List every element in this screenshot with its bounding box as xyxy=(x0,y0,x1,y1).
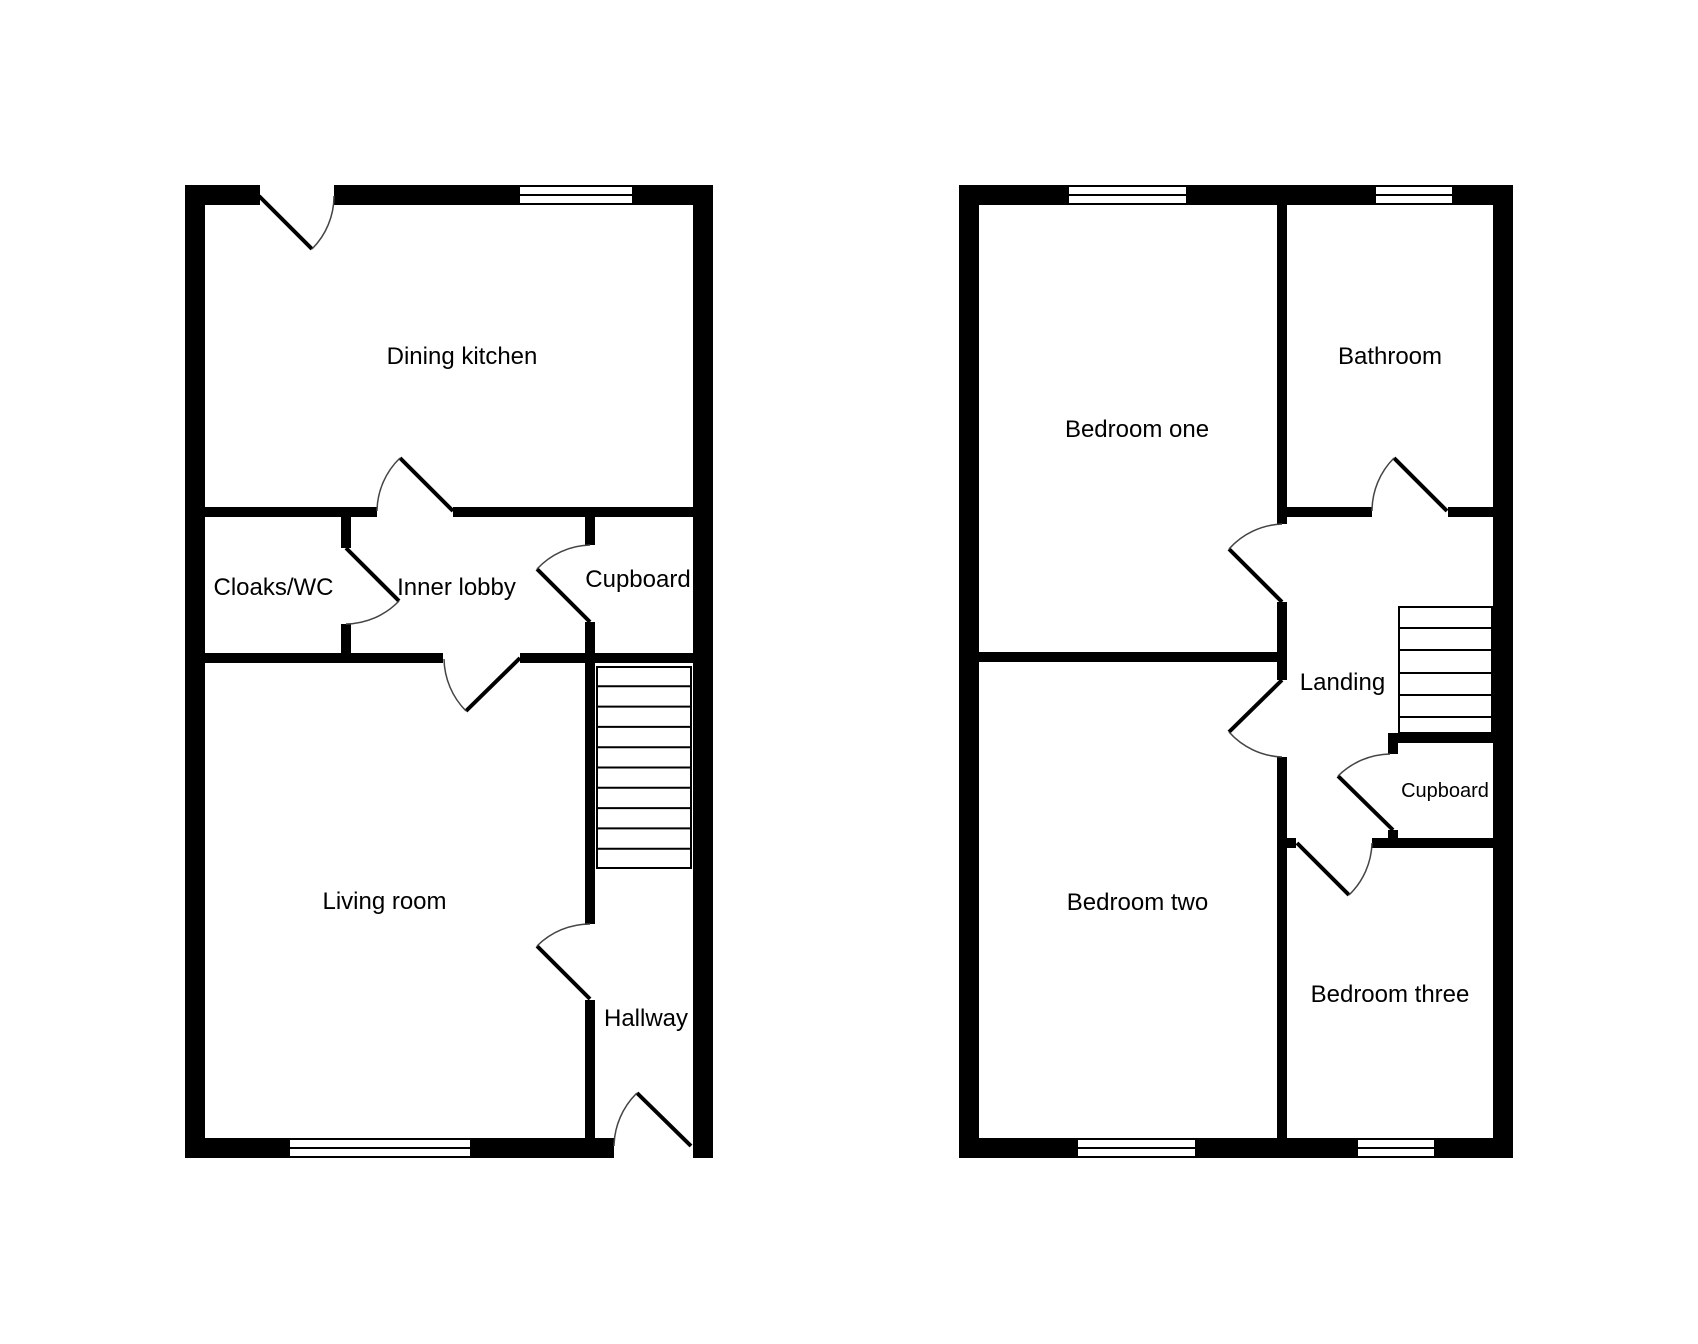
svg-text:Cloaks/WC: Cloaks/WC xyxy=(213,574,333,601)
svg-text:Bathroom: Bathroom xyxy=(1338,343,1442,370)
svg-text:Dining kitchen: Dining kitchen xyxy=(387,343,538,370)
svg-text:Bedroom three: Bedroom three xyxy=(1311,981,1470,1008)
svg-text:Bedroom two: Bedroom two xyxy=(1067,889,1208,916)
svg-text:Cupboard: Cupboard xyxy=(1401,780,1489,802)
svg-text:Hallway: Hallway xyxy=(604,1005,688,1032)
svg-text:Living room: Living room xyxy=(322,888,446,915)
svg-text:Inner lobby: Inner lobby xyxy=(397,574,516,601)
svg-text:Landing: Landing xyxy=(1300,669,1385,696)
svg-text:Cupboard: Cupboard xyxy=(585,566,690,593)
svg-text:Bedroom one: Bedroom one xyxy=(1065,416,1209,443)
